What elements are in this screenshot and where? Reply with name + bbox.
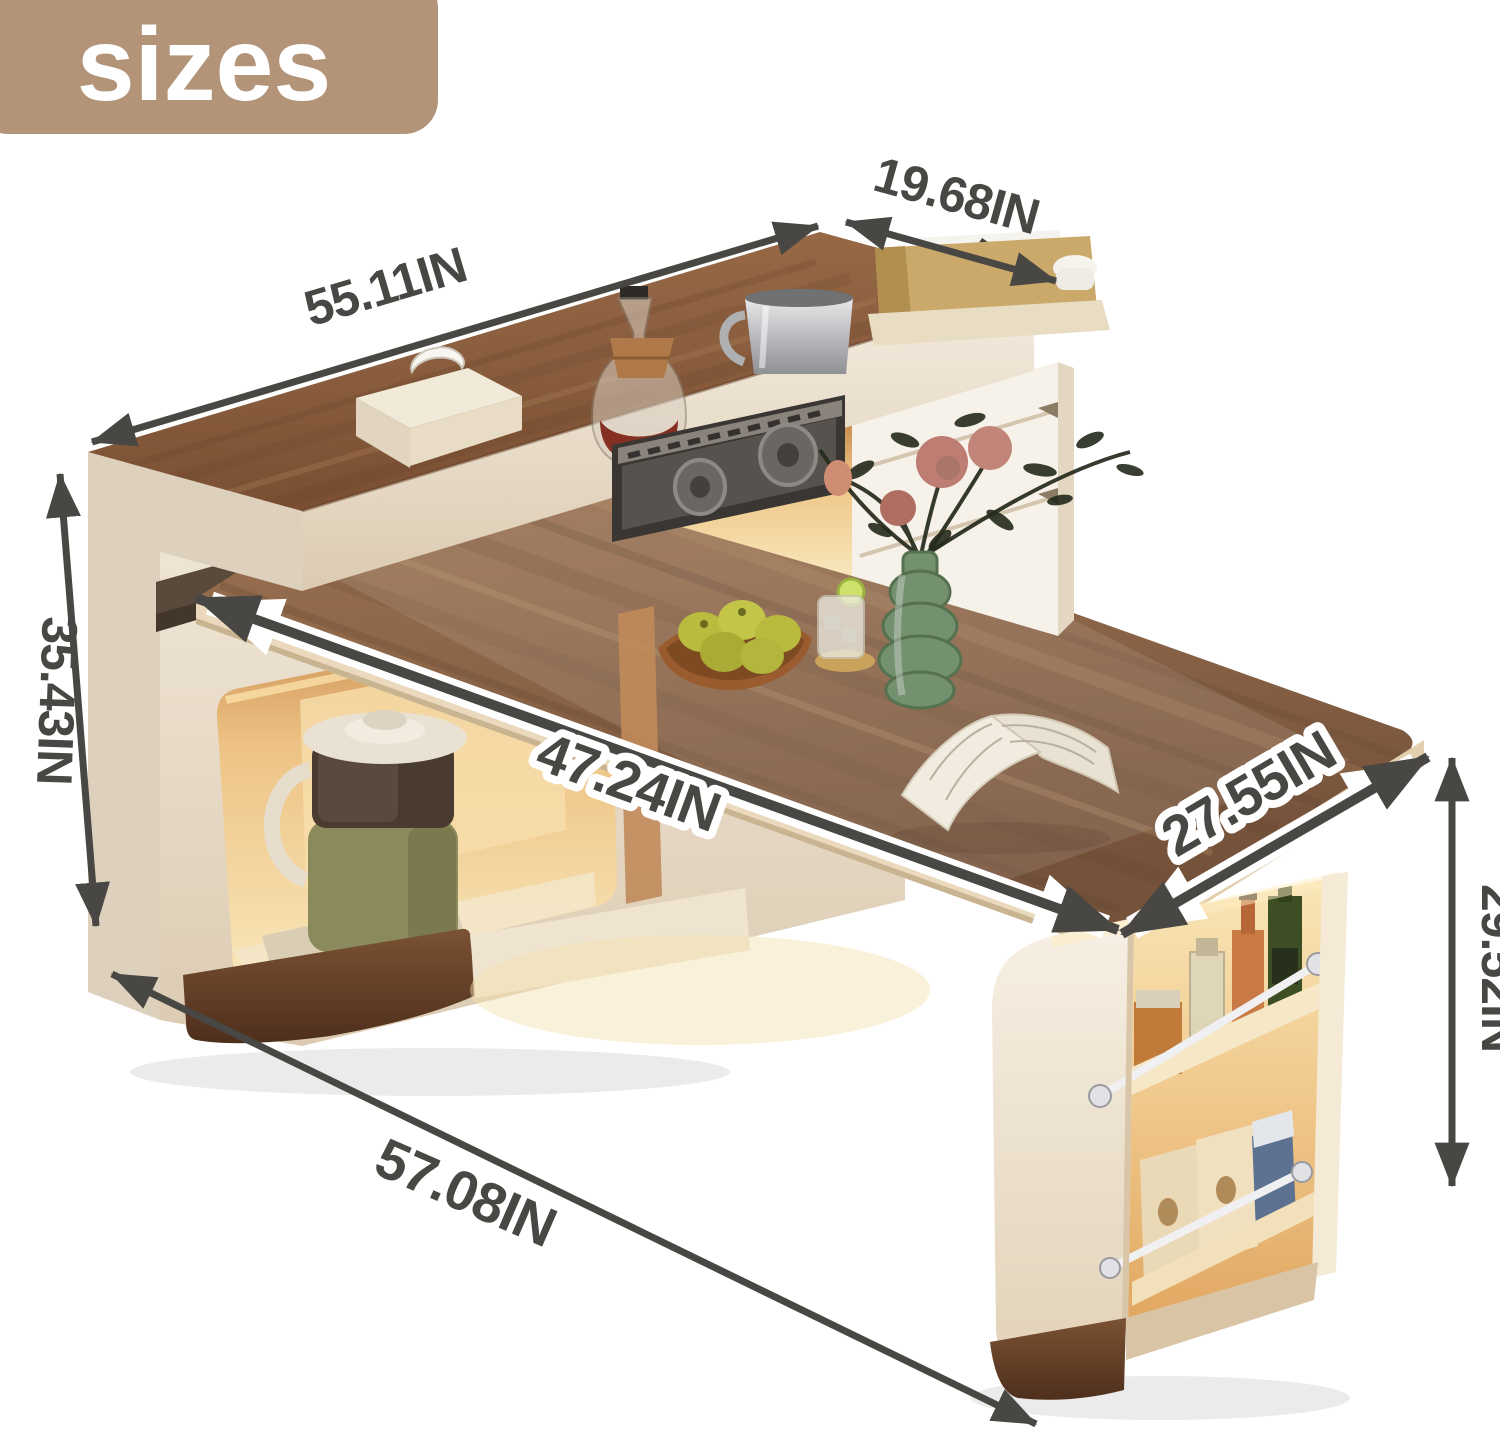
flower-bud — [824, 460, 852, 496]
island-left-side — [88, 532, 160, 1020]
counter-length-label: 55.11IN — [298, 236, 472, 337]
counter-depth-label: 19.68IN — [868, 146, 1045, 245]
dimension-table-height: 29.52IN — [1452, 758, 1500, 1186]
sizes-badge: sizes — [0, 0, 438, 134]
flower-bloom-2 — [968, 426, 1012, 470]
under-island-glow — [470, 935, 930, 1045]
coffee-tray-set — [868, 230, 1110, 346]
product-size-diagram: 55.11IN 19.68IN 35.43IN 47.24IN 27.55IN … — [0, 0, 1500, 1431]
table-height-label: 29.52IN — [1471, 884, 1500, 1052]
size-diagram-canvas: 55.11IN 19.68IN 35.43IN 47.24IN 27.55IN … — [0, 0, 1500, 1431]
flower-bloom-3 — [880, 490, 916, 526]
badge-label: sizes — [77, 7, 331, 123]
table-pedestal — [990, 856, 1348, 1400]
dimension-island-height: 35.43IN — [26, 474, 96, 926]
island-height-label: 35.43IN — [26, 616, 88, 786]
pedestal-left-face — [992, 918, 1134, 1368]
dimension-overall-length: 57.08IN — [112, 974, 1036, 1424]
